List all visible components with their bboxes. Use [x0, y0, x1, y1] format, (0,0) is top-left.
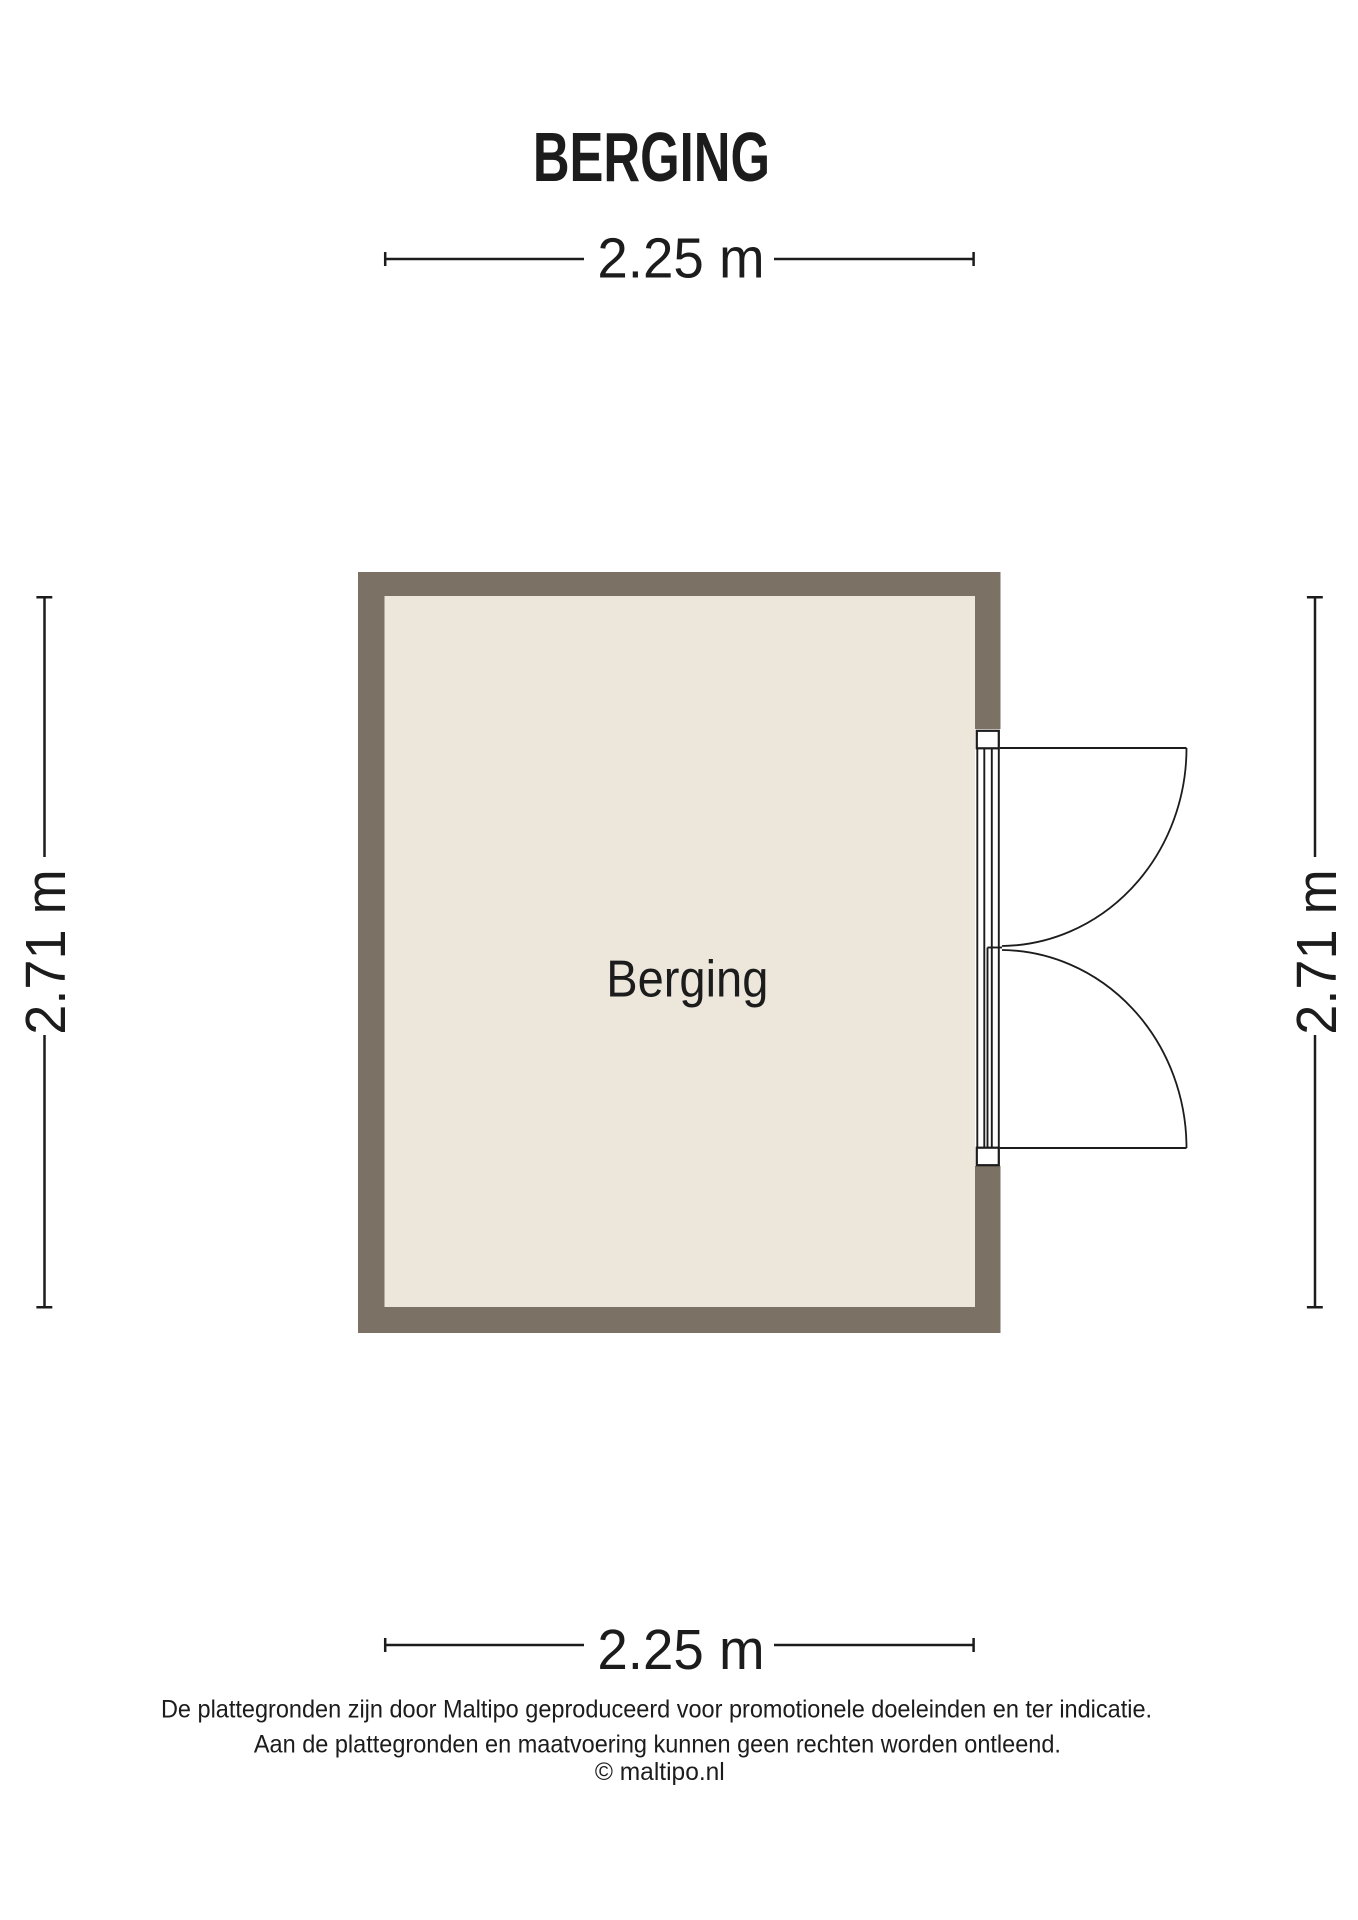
svg-text:Aan de plattegronden en maatvo: Aan de plattegronden en maatvoering kunn… — [254, 1731, 1061, 1759]
svg-text:© maltipo.nl: © maltipo.nl — [595, 1759, 725, 1786]
svg-text:BERGING: BERGING — [533, 118, 770, 196]
svg-text:2.25 m: 2.25 m — [597, 1617, 764, 1681]
svg-text:De plattegronden zijn door Mal: De plattegronden zijn door Maltipo gepro… — [161, 1696, 1152, 1724]
svg-text:2.71 m: 2.71 m — [1285, 869, 1349, 1035]
svg-text:Berging: Berging — [606, 949, 768, 1008]
svg-text:2.25 m: 2.25 m — [597, 225, 764, 289]
svg-text:2.71 m: 2.71 m — [14, 869, 78, 1035]
